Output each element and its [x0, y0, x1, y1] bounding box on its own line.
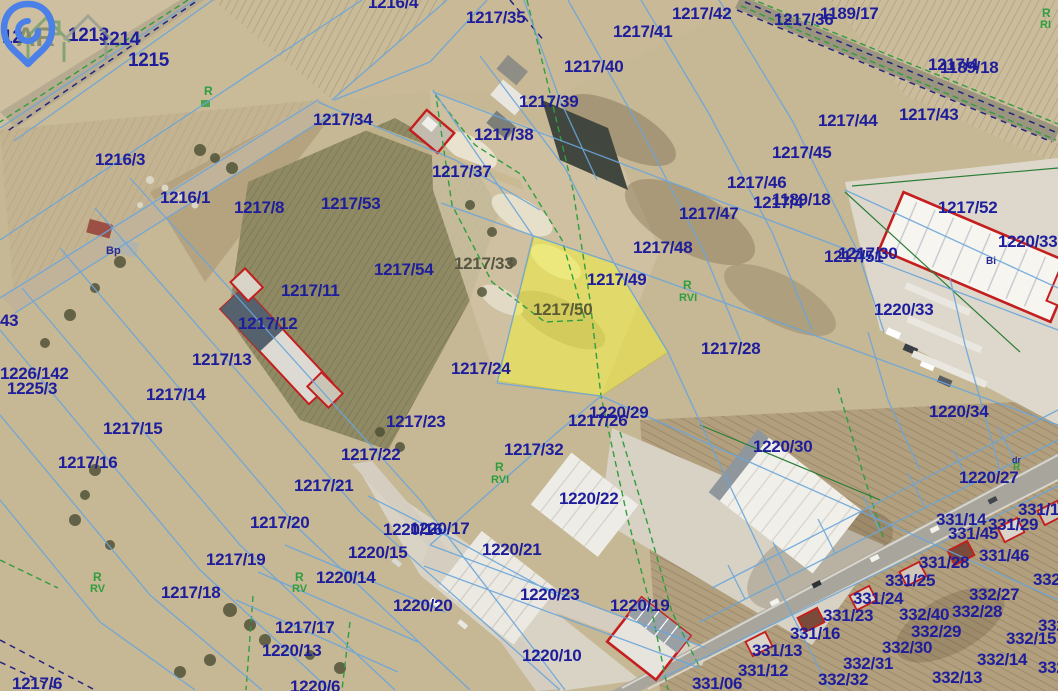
- map-pin-logo: [0, 0, 56, 70]
- aerial-base-layer: [0, 0, 1058, 691]
- map-canvas[interactable]: 121213121412151216/41216/31216/11217/812…: [0, 0, 1058, 691]
